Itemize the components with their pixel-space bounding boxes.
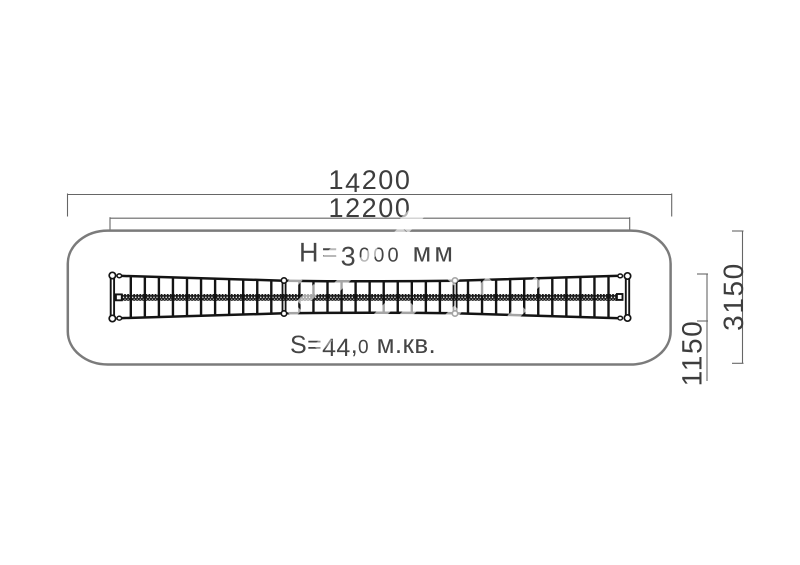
svg-text:1150: 1150 <box>677 320 708 387</box>
svg-text:12200: 12200 <box>328 193 411 223</box>
svg-text:3150: 3150 <box>718 262 749 331</box>
